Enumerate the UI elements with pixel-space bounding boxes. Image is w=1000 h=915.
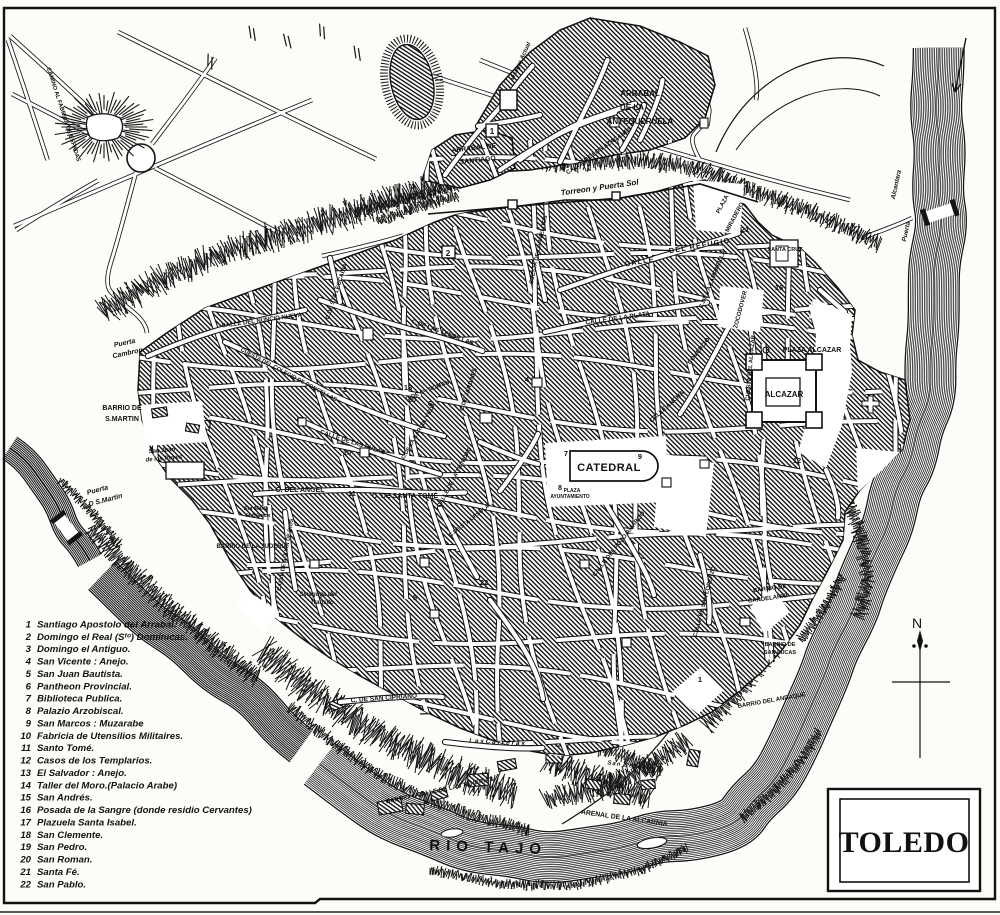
svg-text:Taller del Moro.(Palacio Arabe: Taller del Moro.(Palacio Arabe) — [37, 780, 177, 791]
svg-text:3: 3 — [26, 644, 32, 655]
svg-text:2: 2 — [25, 632, 32, 643]
svg-text:San Andrés.: San Andrés. — [37, 793, 93, 804]
svg-text:11: 11 — [348, 489, 356, 498]
svg-text:SANTA CRUZ: SANTA CRUZ — [767, 247, 803, 253]
svg-text:10: 10 — [20, 731, 31, 742]
svg-text:la Blanca: la Blanca — [246, 513, 270, 519]
svg-text:San Vicente : Anejo.: San Vicente : Anejo. — [37, 657, 129, 668]
svg-text:6: 6 — [26, 681, 32, 692]
svg-text:AYUNTAMIENTO: AYUNTAMIENTO — [550, 494, 589, 500]
svg-text:10: 10 — [343, 448, 351, 457]
svg-text:11: 11 — [21, 743, 31, 754]
svg-text:Fabricia de Utensilios Militai: Fabricia de Utensilios Militaires. — [37, 731, 183, 742]
svg-text:6: 6 — [428, 399, 432, 408]
svg-text:16: 16 — [775, 283, 783, 292]
svg-text:San Pablo.: San Pablo. — [37, 879, 86, 890]
svg-text:Plazuela Santa Isabel.: Plazuela Santa Isabel. — [37, 818, 137, 829]
svg-text:18: 18 — [20, 830, 31, 841]
svg-text:C. DEL ANGEL: C. DEL ANGEL — [275, 487, 325, 494]
svg-text:El Salvador : Anejo.: El Salvador : Anejo. — [37, 768, 127, 779]
svg-text:22: 22 — [19, 879, 31, 890]
svg-text:19: 19 — [20, 842, 31, 853]
svg-text:ALCAZAR: ALCAZAR — [765, 390, 804, 399]
svg-text:15: 15 — [20, 793, 31, 804]
svg-text:San Pedro.: San Pedro. — [37, 842, 87, 853]
svg-text:8: 8 — [558, 485, 562, 492]
svg-text:20: 20 — [408, 395, 416, 404]
svg-text:Sinagoga del: Sinagoga del — [299, 592, 337, 598]
svg-text:1: 1 — [490, 127, 495, 136]
svg-text:Posada de la Sangre (donde res: Posada de la Sangre (donde residio Cerva… — [37, 805, 252, 816]
svg-text:Santo Tomé.: Santo Tomé. — [37, 743, 94, 754]
svg-text:PLAZA ALCAZAR: PLAZA ALCAZAR — [783, 347, 842, 354]
svg-text:Pantheon Provincial.: Pantheon Provincial. — [37, 681, 132, 692]
svg-text:9: 9 — [638, 452, 642, 461]
svg-text:BARRIO DE: BARRIO DE — [102, 405, 142, 412]
svg-text:14: 14 — [20, 780, 31, 791]
svg-text:BARRIO DE LA JUDERIA: BARRIO DE LA JUDERIA — [216, 544, 288, 550]
svg-text:1: 1 — [26, 619, 31, 630]
svg-text:Sta Maria: Sta Maria — [244, 506, 268, 512]
svg-text:21: 21 — [19, 867, 31, 878]
svg-text:7: 7 — [26, 694, 32, 705]
svg-text:San Juan Bautista.: San Juan Bautista. — [37, 669, 123, 680]
svg-text:Biblioteca Publica.: Biblioteca Publica. — [37, 694, 122, 705]
svg-text:1: 1 — [698, 675, 702, 684]
svg-text:13: 13 — [20, 768, 31, 779]
svg-text:CATEDRAL: CATEDRAL — [577, 462, 641, 474]
svg-text:Santiago Apostolo del Arrabal.: Santiago Apostolo del Arrabal. — [37, 619, 176, 630]
svg-text:S.MARTIN: S.MARTIN — [105, 416, 139, 423]
svg-text:16: 16 — [20, 805, 31, 816]
svg-text:2: 2 — [446, 249, 451, 258]
svg-text:BARRIO DE: BARRIO DE — [765, 642, 796, 648]
svg-text:SAN LUCAS: SAN LUCAS — [764, 650, 796, 656]
svg-text:12: 12 — [20, 756, 31, 767]
svg-text:20: 20 — [19, 855, 31, 866]
svg-text:ARRABAL: ARRABAL — [620, 89, 660, 98]
svg-text:Santa Fé.: Santa Fé. — [37, 867, 80, 878]
svg-text:12: 12 — [793, 456, 801, 465]
svg-text:5: 5 — [413, 593, 417, 602]
svg-text:5: 5 — [26, 669, 32, 680]
svg-text:C. DE SANTA TOMÉ: C. DE SANTA TOMÉ — [372, 491, 438, 500]
svg-text:DE LA: DE LA — [620, 103, 644, 112]
svg-text:Domingo el Real (Sᵗᵒ) Dominica: Domingo el Real (Sᵗᵒ) Dominicas. — [37, 632, 188, 643]
svg-text:TOLEDO: TOLEDO — [839, 826, 970, 859]
svg-text:San Marcos : Muzarabe: San Marcos : Muzarabe — [37, 718, 144, 729]
svg-text:San Roman.: San Roman. — [37, 855, 92, 866]
svg-text:9: 9 — [26, 718, 32, 729]
svg-text:Domingo el Antiguo.: Domingo el Antiguo. — [37, 644, 130, 655]
svg-text:8: 8 — [26, 706, 32, 717]
svg-text:21: 21 — [741, 225, 749, 234]
svg-text:Casos de los Templarios.: Casos de los Templarios. — [37, 756, 152, 767]
svg-text:Transito: Transito — [310, 600, 334, 606]
svg-text:N: N — [912, 615, 922, 631]
svg-text:San Clemente.: San Clemente. — [37, 830, 103, 841]
svg-text:22: 22 — [480, 578, 488, 587]
svg-text:17: 17 — [20, 818, 31, 829]
svg-text:ANTEQUERUELA: ANTEQUERUELA — [607, 117, 674, 126]
svg-text:Palazio Arzobiscal.: Palazio Arzobiscal. — [37, 706, 124, 717]
svg-text:3: 3 — [343, 385, 347, 394]
svg-text:7: 7 — [564, 449, 568, 458]
svg-text:18: 18 — [404, 383, 412, 392]
svg-text:4: 4 — [25, 657, 32, 668]
